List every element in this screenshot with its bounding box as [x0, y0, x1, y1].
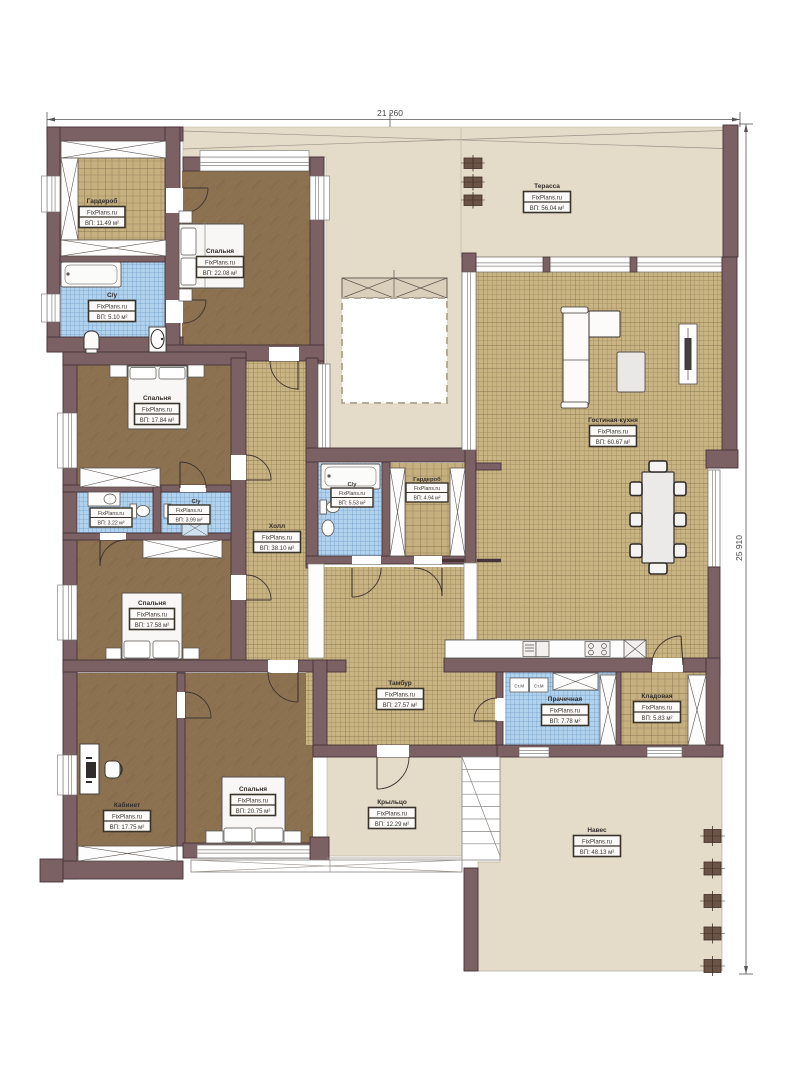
- svg-text:FixPlans.ru: FixPlans.ru: [339, 491, 365, 497]
- svg-text:FixPlans.ru: FixPlans.ru: [137, 613, 167, 619]
- svg-text:Тамбур: Тамбур: [388, 679, 412, 687]
- svg-text:FixPlans.ru: FixPlans.ru: [112, 815, 142, 821]
- svg-text:ВП: 5.10 м²: ВП: 5.10 м²: [96, 315, 127, 321]
- svg-text:С/у: С/у: [107, 292, 118, 299]
- svg-text:FixPlans.ru: FixPlans.ru: [598, 430, 628, 436]
- svg-text:Ст.М: Ст.М: [514, 684, 524, 689]
- svg-text:FixPlans.ru: FixPlans.ru: [642, 706, 672, 712]
- svg-text:Навес: Навес: [587, 827, 607, 834]
- svg-text:FixPlans.ru: FixPlans.ru: [176, 508, 202, 514]
- svg-text:FixPlans.ru: FixPlans.ru: [142, 408, 172, 414]
- svg-text:ВП: 3.99 м²: ВП: 3.99 м²: [176, 518, 203, 524]
- svg-text:Холл: Холл: [269, 523, 285, 530]
- svg-text:Крыльцо: Крыльцо: [377, 799, 407, 806]
- svg-text:Гардероб: Гардероб: [87, 197, 118, 205]
- svg-text:С/у: С/у: [347, 482, 357, 488]
- svg-text:ВП: 17.75 м²: ВП: 17.75 м²: [110, 825, 144, 831]
- svg-text:ВП: 56.04 м²: ВП: 56.04 м²: [530, 206, 564, 212]
- svg-text:Кабинет: Кабинет: [114, 801, 140, 809]
- svg-text:FixPlans.ru: FixPlans.ru: [385, 693, 415, 699]
- svg-text:FixPlans.ru: FixPlans.ru: [582, 840, 612, 846]
- svg-text:ВП: 38.10 м²: ВП: 38.10 м²: [260, 546, 294, 552]
- svg-text:FixPlans.ru: FixPlans.ru: [377, 812, 407, 818]
- svg-text:ВП: 12.29 м²: ВП: 12.29 м²: [375, 822, 409, 828]
- svg-text:ВП: 7.78 м²: ВП: 7.78 м²: [549, 719, 580, 725]
- svg-text:FixPlans.ru: FixPlans.ru: [262, 536, 292, 542]
- svg-text:FixPlans.ru: FixPlans.ru: [238, 799, 268, 805]
- svg-text:Спальня: Спальня: [239, 786, 267, 793]
- svg-text:FixPlans.ru: FixPlans.ru: [532, 196, 562, 202]
- svg-text:Гостиная-кухня: Гостиная-кухня: [588, 417, 638, 424]
- svg-text:Ст.М: Ст.М: [534, 684, 544, 689]
- svg-text:ВП: 17.58 м²: ВП: 17.58 м²: [135, 623, 169, 629]
- svg-text:ВП: 3.22 м²: ВП: 3.22 м²: [98, 521, 125, 527]
- svg-text:ВП: 20.75 м²: ВП: 20.75 м²: [236, 809, 270, 815]
- svg-text:21 260: 21 260: [377, 108, 403, 118]
- svg-text:ВП: 4.94 м²: ВП: 4.94 м²: [414, 496, 441, 502]
- svg-text:ВП: 22.08 м²: ВП: 22.08 м²: [203, 271, 237, 277]
- svg-text:Спальня: Спальня: [143, 395, 171, 402]
- svg-text:ВП: 5.83 м²: ВП: 5.83 м²: [641, 716, 672, 722]
- svg-text:ВП: 5.53 м²: ВП: 5.53 м²: [339, 501, 366, 507]
- svg-text:С/у: С/у: [191, 499, 201, 505]
- svg-text:FixPlans.ru: FixPlans.ru: [97, 305, 127, 311]
- svg-text:ВП: 17.84 м²: ВП: 17.84 м²: [140, 418, 174, 424]
- svg-text:ВП: 27.57 м²: ВП: 27.57 м²: [383, 703, 417, 709]
- svg-text:FixPlans.ru: FixPlans.ru: [205, 261, 235, 267]
- svg-text:ВП: 48.13 м²: ВП: 48.13 м²: [580, 850, 614, 856]
- svg-text:FixPlans.ru: FixPlans.ru: [87, 211, 117, 217]
- svg-text:Спальня: Спальня: [138, 600, 166, 607]
- svg-text:FixPlans.ru: FixPlans.ru: [414, 486, 440, 492]
- svg-text:Кладовая: Кладовая: [641, 693, 672, 700]
- svg-text:Гардероб: Гардероб: [413, 476, 441, 483]
- svg-text:Терасса: Терасса: [534, 183, 560, 190]
- svg-text:FixPlans.ru: FixPlans.ru: [550, 709, 580, 715]
- svg-text:Прачечная: Прачечная: [548, 696, 583, 703]
- svg-text:ВП: 11.49 м²: ВП: 11.49 м²: [85, 221, 119, 227]
- svg-text:ВП: 60.67 м²: ВП: 60.67 м²: [596, 440, 630, 446]
- svg-text:FixPlans.ru: FixPlans.ru: [98, 511, 124, 517]
- svg-text:25 910: 25 910: [734, 535, 744, 561]
- svg-text:Спальня: Спальня: [206, 248, 234, 255]
